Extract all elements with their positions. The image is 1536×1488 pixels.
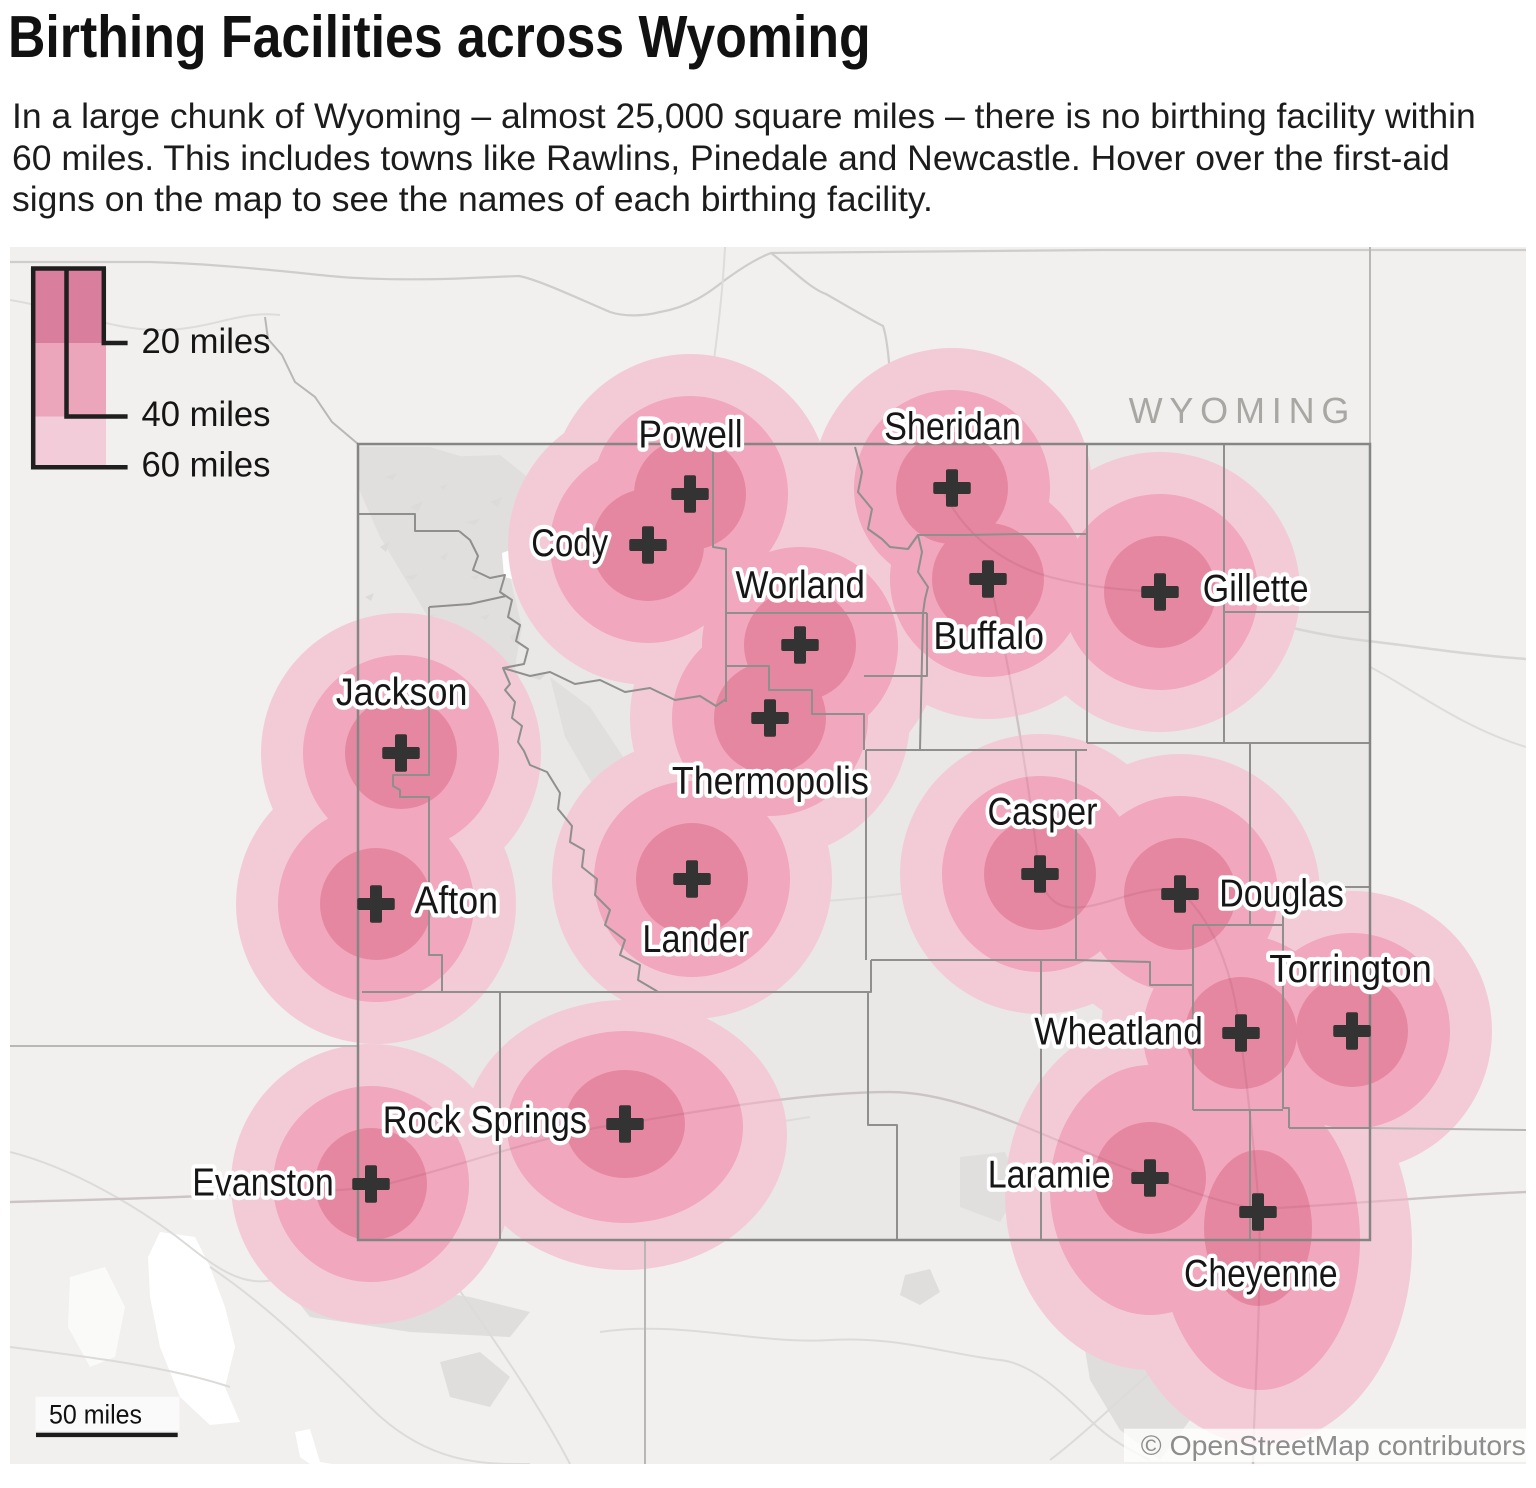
svg-text:Gillette: Gillette (1203, 567, 1309, 610)
svg-text:Jackson: Jackson (336, 671, 468, 714)
svg-text:Torrington: Torrington (1269, 948, 1432, 991)
svg-text:Douglas: Douglas (1219, 872, 1344, 915)
svg-text:© OpenStreetMap contributors: © OpenStreetMap contributors (1141, 1430, 1526, 1461)
svg-text:Lander: Lander (642, 918, 749, 961)
svg-text:Buffalo: Buffalo (933, 615, 1044, 658)
svg-text:60 miles: 60 miles (142, 445, 271, 485)
svg-text:Cody: Cody (531, 522, 608, 565)
svg-text:Worland: Worland (735, 564, 865, 607)
svg-text:40 miles: 40 miles (142, 394, 271, 434)
svg-text:WYOMING: WYOMING (1129, 390, 1357, 431)
svg-text:Cheyenne: Cheyenne (1184, 1253, 1338, 1296)
svg-text:Evanston: Evanston (192, 1161, 334, 1204)
svg-text:Casper: Casper (988, 790, 1098, 833)
svg-text:Powell: Powell (638, 414, 742, 457)
svg-text:50 miles: 50 miles (49, 1399, 142, 1429)
svg-text:Wheatland: Wheatland (1034, 1011, 1203, 1054)
svg-text:Sheridan: Sheridan (884, 406, 1021, 449)
svg-text:Thermopolis: Thermopolis (672, 760, 869, 803)
svg-text:Afton: Afton (415, 880, 499, 923)
svg-text:Laramie: Laramie (988, 1154, 1111, 1197)
svg-text:Rock Springs: Rock Springs (383, 1099, 587, 1142)
svg-text:20 miles: 20 miles (142, 321, 271, 361)
